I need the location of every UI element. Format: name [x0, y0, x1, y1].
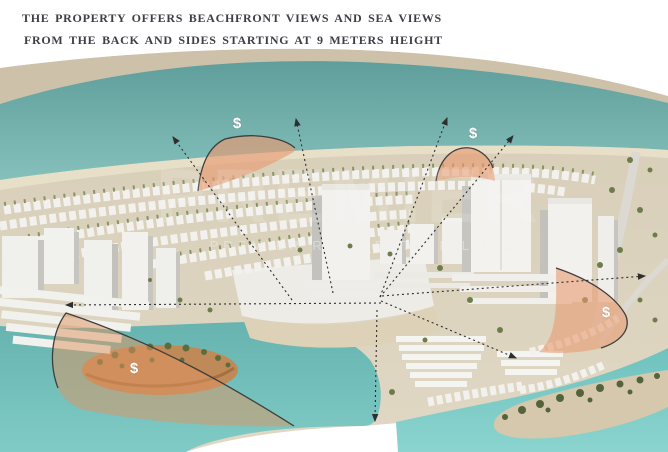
- title-line-1: THE PROPERTY OFFERS BEACHFRONT VIEWS AND…: [22, 7, 443, 29]
- price-marker: $: [130, 360, 139, 377]
- page-title: THE PROPERTY OFFERS BEACHFRONT VIEWS AND…: [22, 7, 443, 51]
- title-line-2: FROM THE BACK AND SIDES STARTING AT 9 ME…: [22, 29, 443, 51]
- watermark-company-line: PREMIER REAL ESTATE L.L.C.: [210, 238, 527, 253]
- price-marker: $: [469, 125, 478, 142]
- masterplan-render: PREMIER PREMIER REAL ESTATE L.L.C. $ $ $…: [0, 0, 668, 452]
- watermark-logo: PREMIER: [156, 154, 544, 239]
- brochure-page: THE PROPERTY OFFERS BEACHFRONT VIEWS AND…: [0, 0, 668, 452]
- price-marker: $: [602, 304, 611, 321]
- price-marker: $: [233, 115, 242, 132]
